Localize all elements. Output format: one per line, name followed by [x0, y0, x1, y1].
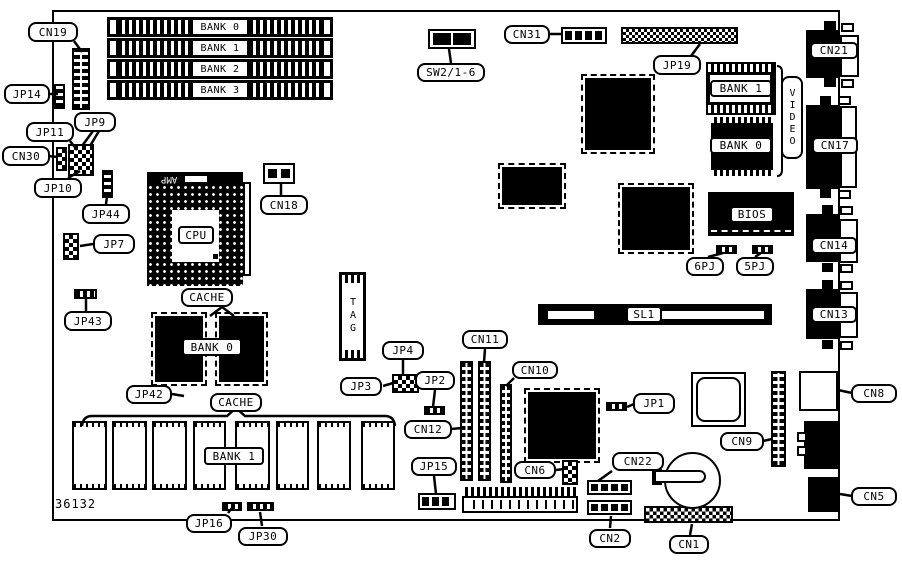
cn17-label: CN17: [812, 137, 858, 154]
video-bank0-pins: [711, 170, 773, 176]
cpu-socket-lever: [243, 182, 251, 276]
cache-chip: [72, 421, 107, 490]
io-controller-qfp: [528, 392, 596, 459]
cn1-label: CN1: [669, 535, 709, 554]
cn30-connector: [56, 147, 67, 171]
cache-chip: [317, 421, 351, 490]
jp10-label: JP10: [34, 178, 82, 198]
simm-module: [118, 60, 191, 78]
cn21-tab: [824, 77, 836, 87]
cache-chip: [361, 421, 395, 490]
cn14-label: CN14: [811, 237, 857, 254]
audio-jack-hole: [797, 432, 807, 442]
bottom-edge-connector: [462, 487, 578, 513]
tag-chip-pins: [342, 350, 363, 358]
jp15-jumper: [418, 493, 456, 510]
jp1-label: JP1: [633, 393, 675, 414]
simm-clip: [108, 81, 118, 99]
board-part-number: 36132: [55, 497, 96, 511]
cn2-header: [587, 500, 632, 515]
simm-bank-label: BANK 3: [191, 81, 249, 99]
sw2-dip-switch: [428, 29, 476, 49]
amp-brand-text: AMP: [161, 174, 177, 184]
cpu-socket-amp-bar: AMP: [147, 172, 243, 185]
jp43-jumper: [74, 289, 97, 299]
cn22-header: [587, 480, 632, 495]
jp4-label: JP4: [382, 341, 424, 360]
cn19-connector: [72, 48, 90, 110]
cn19-label: CN19: [28, 22, 78, 42]
sl1-slot-key: [548, 311, 594, 319]
jp15-label: JP15: [411, 457, 457, 476]
cn12-header: [460, 361, 473, 481]
sl1-slot-key: [662, 311, 764, 319]
6pj-label: 6PJ: [686, 257, 724, 276]
simm-module: [249, 81, 322, 99]
cn10-label: CN10: [512, 361, 558, 379]
bios-label: BIOS: [730, 206, 774, 223]
cpu-pin1-marker: [213, 254, 218, 259]
bios-chip-dashed-line: [711, 230, 791, 232]
cache-label-bottom: CACHE: [210, 393, 262, 412]
cn13-tab: [822, 280, 833, 289]
tag-chip-label: TAG: [348, 297, 358, 336]
leader-cn8: [838, 390, 852, 393]
jp7-header: [63, 233, 79, 260]
cache-chip: [112, 421, 147, 490]
jp7-label: JP7: [93, 234, 135, 254]
cn9-header: [771, 371, 786, 467]
sw2-switch-block: [453, 33, 471, 45]
jp2-jumper: [424, 406, 445, 415]
cache-chip: [152, 421, 187, 490]
jp44-label: JP44: [82, 204, 130, 224]
bottom-edge-connector-pins: [462, 487, 578, 496]
video-bank1-label: BANK 1: [710, 80, 772, 97]
simm-clip: [108, 60, 118, 78]
simm-module: [118, 18, 191, 36]
6pj-jumper: [716, 245, 737, 254]
cn31-label: CN31: [504, 25, 550, 44]
video-label-text: VIDEO: [787, 88, 797, 148]
cache-label-top: CACHE: [181, 288, 233, 307]
simm-clip: [322, 81, 332, 99]
cn10-header: [500, 384, 512, 483]
audio-jack-hole: [797, 446, 807, 456]
jp43-label: JP43: [64, 311, 112, 331]
cn17-tab: [838, 96, 851, 105]
simm-clip: [322, 39, 332, 57]
cn21-label: CN21: [810, 42, 858, 59]
cn18-pin: [281, 169, 290, 178]
chipset-qfp: [585, 78, 651, 150]
cn17-tab: [820, 96, 831, 105]
cn14-tab: [822, 205, 833, 214]
cn12-label: CN12: [404, 420, 452, 439]
cache-bank0-label: BANK 0: [182, 338, 242, 356]
cn21-tab: [824, 21, 836, 31]
cn9-label: CN9: [720, 432, 764, 451]
leader-cn1: [690, 524, 692, 535]
cn5-label: CN5: [851, 487, 897, 506]
jp3-label: JP3: [340, 377, 382, 396]
jp16-label: JP16: [186, 514, 232, 533]
cn18-connector: [263, 163, 295, 184]
cn5-connector: [808, 477, 840, 512]
jp2-label: JP2: [415, 371, 455, 390]
cn22-label: CN22: [612, 452, 664, 471]
jp11-label: JP11: [26, 122, 74, 142]
cn11-label: CN11: [462, 330, 508, 349]
cn21-tab: [841, 79, 854, 88]
jp14-jumper: [54, 84, 65, 109]
plcc-chip-inner: [696, 377, 741, 422]
plcc-chip: [691, 372, 746, 427]
sl1-label: SL1: [626, 306, 662, 323]
cn2-label: CN2: [589, 529, 631, 548]
tag-chip: TAG: [339, 272, 366, 361]
jp19-label: JP19: [653, 55, 701, 75]
cn17-tab: [838, 190, 851, 199]
cn30-label: CN30: [2, 146, 50, 166]
cn14-tab: [840, 264, 853, 273]
cache-chip: [276, 421, 309, 490]
jp19-header: [621, 27, 738, 44]
cn11-header: [478, 361, 491, 481]
cn17-tab: [820, 189, 831, 198]
chipset-qfp: [622, 187, 690, 250]
sw2-label: SW2/1-6: [417, 63, 485, 82]
simm-clip: [108, 39, 118, 57]
simm-module: [249, 18, 322, 36]
jp1-jumper: [606, 402, 627, 411]
cn13-label: CN13: [811, 306, 857, 323]
motherboard-layout-diagram: BANK 0 BANK 1 BANK 2 BANK 3 AMP: [0, 0, 902, 561]
cn13-tab: [840, 281, 853, 290]
video-bank1-pins: [708, 105, 772, 113]
cn31-header: [561, 27, 607, 44]
simm-slot-bank1: BANK 1: [107, 38, 333, 58]
cpu-label: CPU: [178, 226, 214, 244]
simm-clip: [108, 18, 118, 36]
5pj-label: 5PJ: [736, 257, 774, 276]
jp44-jumper: [102, 170, 113, 198]
cn18-pin: [268, 169, 277, 178]
cache-bank1-label: BANK 1: [204, 447, 264, 465]
simm-slot-bank0: BANK 0: [107, 17, 333, 37]
jp42-label: JP42: [126, 385, 172, 404]
simm-module: [249, 39, 322, 57]
jp16-jumper: [222, 502, 242, 511]
simm-slot-bank3: BANK 3: [107, 80, 333, 100]
battery-clip: [654, 470, 706, 483]
cn18-label: CN18: [260, 195, 308, 215]
cn13-tab: [840, 341, 853, 350]
tag-chip-pins: [342, 275, 363, 283]
cn6-label: CN6: [514, 461, 556, 479]
video-bank1-pins: [708, 64, 772, 72]
cn8-label: CN8: [851, 384, 897, 403]
cn14-tab: [822, 263, 833, 272]
5pj-jumper: [752, 245, 773, 254]
simm-module: [118, 81, 191, 99]
cn14-tab: [840, 206, 853, 215]
cn13-tab: [822, 340, 833, 349]
sw2-switch-block: [433, 33, 451, 45]
jp30-label: JP30: [238, 527, 288, 546]
simm-bank-label: BANK 0: [191, 18, 249, 36]
jp14-label: JP14: [4, 84, 50, 104]
bottom-edge-connector-body: [462, 496, 578, 513]
jp9-label: JP9: [74, 112, 116, 132]
video-bank0-pins: [711, 117, 773, 123]
audio-jack-block: [804, 421, 840, 469]
simm-bank-label: BANK 1: [191, 39, 249, 57]
cn8-connector: [799, 371, 838, 411]
simm-module: [249, 60, 322, 78]
simm-clip: [322, 60, 332, 78]
simm-module: [118, 39, 191, 57]
simm-bank-label: BANK 2: [191, 60, 249, 78]
simm-slot-bank2: BANK 2: [107, 59, 333, 79]
jp9-jp10-jp11-block: [68, 144, 94, 176]
cn6-header: [562, 460, 578, 485]
video-label: VIDEO: [781, 76, 803, 159]
cn21-tab: [841, 23, 854, 32]
amp-bar-notch: [185, 176, 207, 182]
jp30-jumper: [247, 502, 274, 511]
chipset-qfp: [502, 167, 562, 205]
simm-clip: [322, 18, 332, 36]
video-bank0-label: BANK 0: [710, 137, 772, 154]
